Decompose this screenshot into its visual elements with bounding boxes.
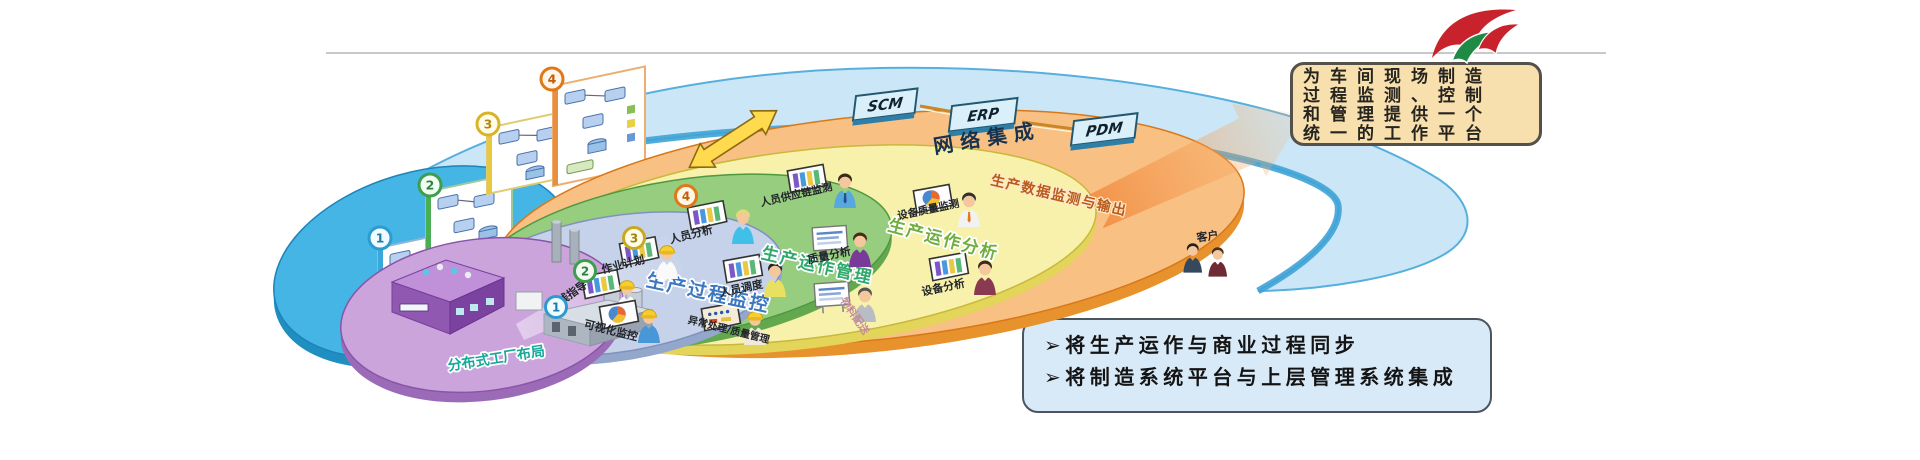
note-line: 统一的工作平台 bbox=[1303, 125, 1533, 144]
svg-text:3: 3 bbox=[630, 232, 638, 246]
brand-logo bbox=[1422, 0, 1534, 64]
note-line: 过程监测、控制 bbox=[1303, 87, 1533, 106]
svg-text:3: 3 bbox=[484, 117, 493, 132]
svg-text:1: 1 bbox=[552, 301, 560, 315]
mes-platform-diagram: 制造过程扩展 模型 bbox=[0, 0, 1920, 460]
svg-text:1: 1 bbox=[376, 231, 385, 246]
panel-badge-2: 2 bbox=[419, 174, 441, 196]
svg-text:2: 2 bbox=[426, 178, 435, 193]
slide: 制造过程扩展 模型 bbox=[0, 0, 1920, 460]
layer-badge-1: 1 bbox=[546, 297, 567, 318]
panel-badge-4: 4 bbox=[541, 68, 563, 90]
svg-text:2: 2 bbox=[581, 265, 589, 279]
logo-red-petal bbox=[1478, 24, 1520, 54]
layer-badge-3: 3 bbox=[624, 228, 645, 249]
note-line: 和管理提供一个 bbox=[1303, 106, 1533, 125]
panel-badge-1: 1 bbox=[369, 227, 391, 249]
panel-badge-3: 3 bbox=[477, 113, 499, 135]
svg-text:4: 4 bbox=[682, 190, 690, 204]
note-line: 为车间现场制造 bbox=[1303, 68, 1533, 87]
layer-badge-4: 4 bbox=[676, 186, 697, 207]
platform-note: 为车间现场制造 过程监测、控制 和管理提供一个 统一的工作平台 bbox=[1290, 62, 1542, 146]
svg-text:4: 4 bbox=[548, 72, 557, 87]
layer-badge-2: 2 bbox=[575, 261, 596, 282]
